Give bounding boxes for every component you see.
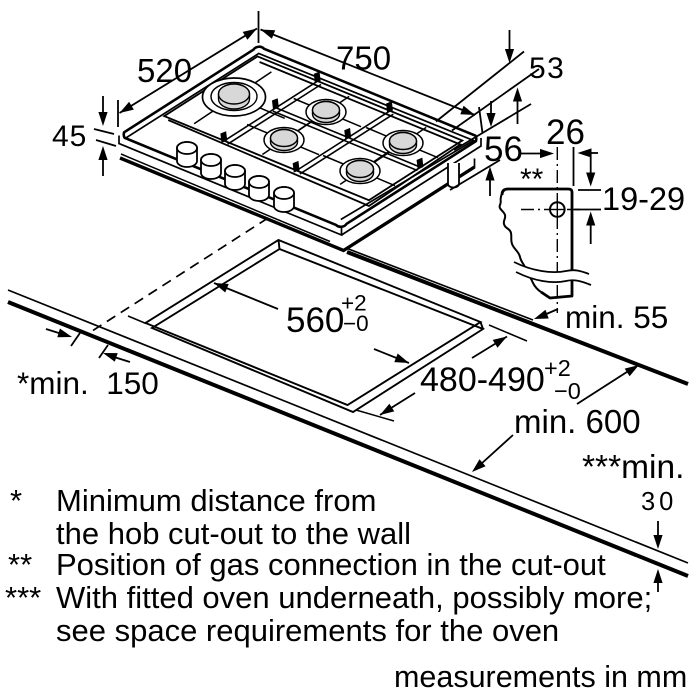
svg-text:53: 53 <box>529 52 565 85</box>
svg-text:−0: −0 <box>554 378 581 404</box>
svg-text:the hob cut-out to the wall: the hob cut-out to the wall <box>56 516 411 551</box>
svg-text:26: 26 <box>546 113 585 152</box>
svg-text:*: * <box>10 483 22 518</box>
svg-text:Minimum distance from: Minimum distance from <box>56 483 376 518</box>
svg-text:*min. 150: *min. 150 <box>17 365 159 401</box>
svg-text:see space requirements for the: see space requirements for the oven <box>56 613 559 648</box>
svg-text:45: 45 <box>52 120 87 153</box>
svg-text:***: *** <box>5 580 41 615</box>
svg-text:19-29: 19-29 <box>602 181 685 217</box>
svg-text:480-490: 480-490 <box>420 361 545 399</box>
svg-text:30: 30 <box>641 488 677 516</box>
svg-text:**: ** <box>8 547 32 582</box>
svg-text:56: 56 <box>484 130 523 169</box>
svg-text:−0: −0 <box>343 311 369 336</box>
svg-text:min. 55: min. 55 <box>565 299 668 335</box>
svg-text:520: 520 <box>137 52 192 89</box>
svg-text:min. 600: min. 600 <box>514 403 641 440</box>
svg-text:**: ** <box>520 163 544 196</box>
svg-text:Position of gas connection in: Position of gas connection in the cut-ou… <box>56 547 606 582</box>
svg-text:***min.: ***min. <box>582 449 684 486</box>
svg-text:560: 560 <box>286 301 344 340</box>
svg-text:With fitted oven underneath, p: With fitted oven underneath, possibly mo… <box>56 580 652 615</box>
svg-text:measurements in mm: measurements in mm <box>394 660 687 694</box>
